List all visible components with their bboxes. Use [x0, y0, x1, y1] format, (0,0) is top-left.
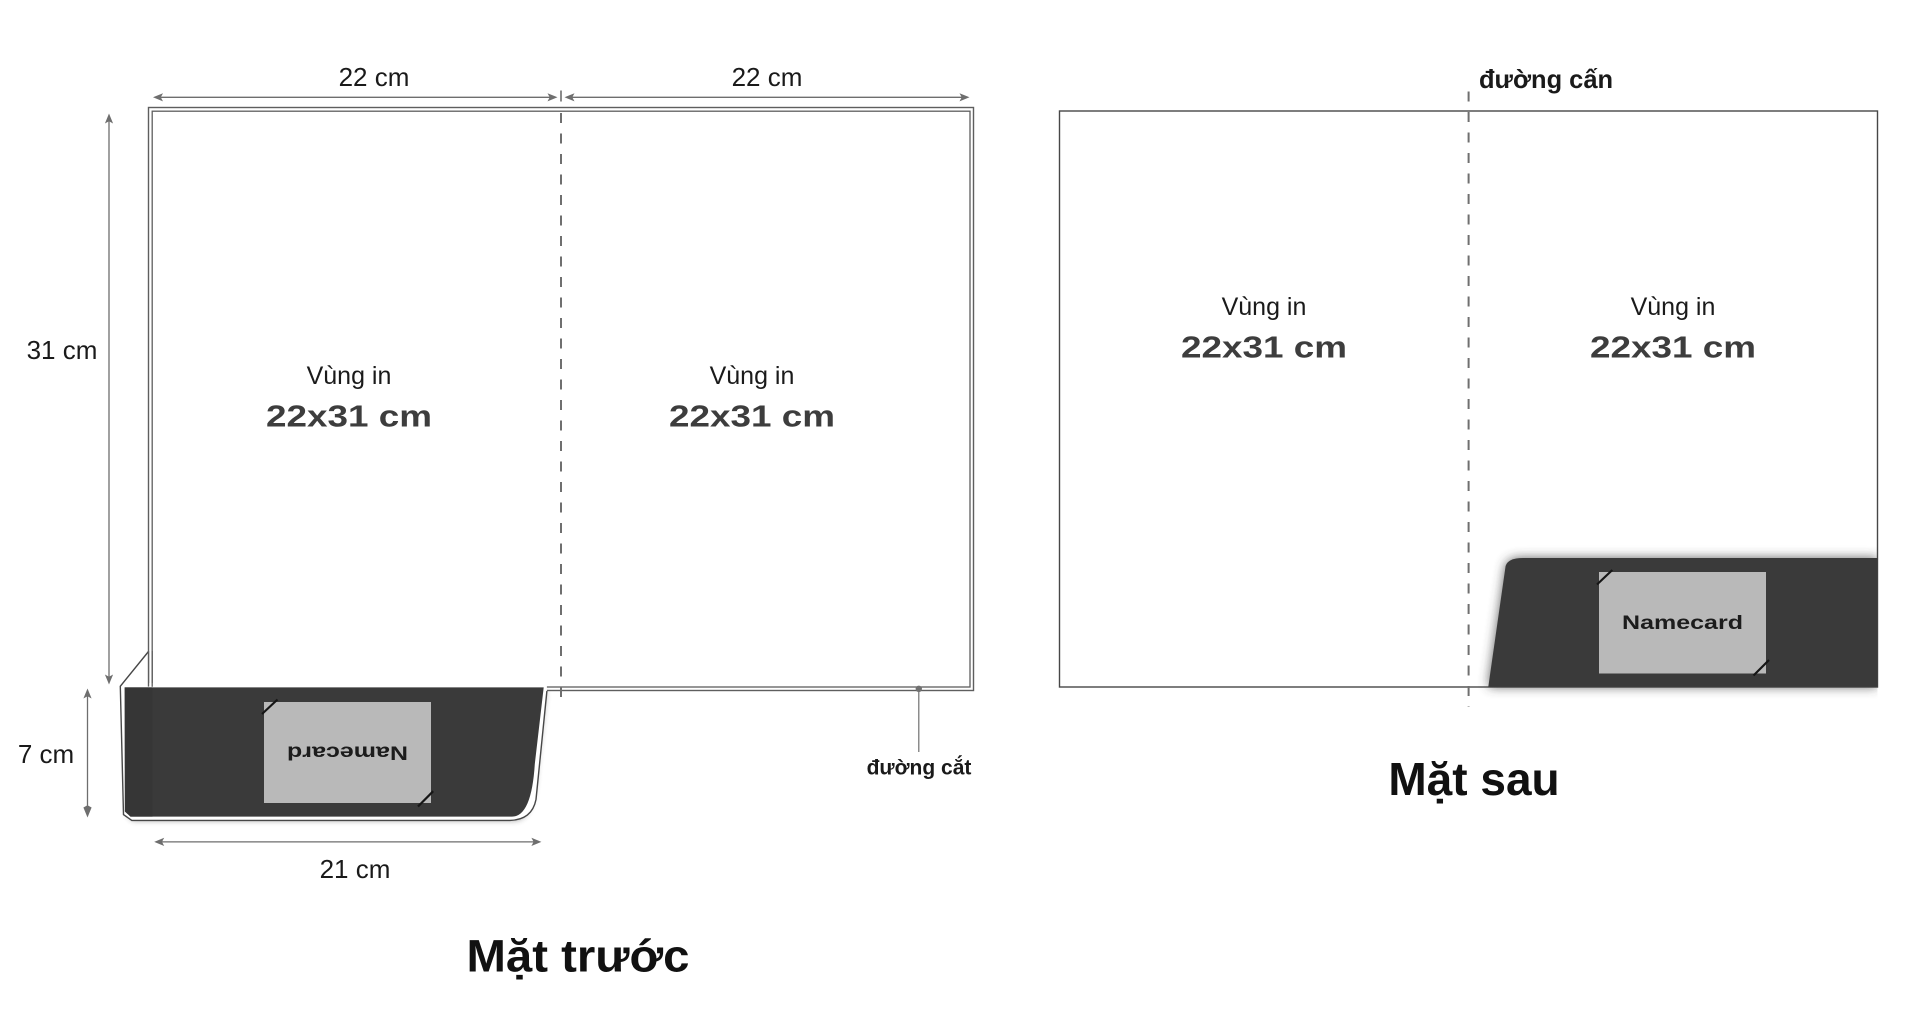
svg-text:21 cm: 21 cm — [320, 854, 391, 884]
svg-text:22x31 cm: 22x31 cm — [1181, 330, 1347, 365]
svg-text:Vùng in: Vùng in — [710, 362, 795, 390]
svg-text:Namecard: Namecard — [287, 742, 408, 763]
svg-text:Namecard: Namecard — [1622, 613, 1743, 634]
svg-text:31 cm: 31 cm — [27, 335, 98, 365]
svg-text:đường cấn: đường cấn — [1479, 64, 1613, 94]
svg-text:Vùng in: Vùng in — [1222, 293, 1307, 321]
svg-text:22 cm: 22 cm — [732, 62, 803, 92]
svg-text:Vùng in: Vùng in — [1631, 293, 1716, 321]
svg-text:Mặt trước: Mặt trước — [467, 931, 690, 982]
svg-text:22x31 cm: 22x31 cm — [669, 399, 835, 434]
svg-text:22 cm: 22 cm — [339, 62, 410, 92]
svg-text:22x31 cm: 22x31 cm — [1590, 330, 1756, 365]
svg-text:7 cm: 7 cm — [18, 739, 74, 769]
svg-text:22x31 cm: 22x31 cm — [266, 399, 432, 434]
svg-text:đường cắt: đường cắt — [867, 756, 972, 780]
svg-text:Mặt sau: Mặt sau — [1388, 753, 1559, 805]
svg-text:Vùng in: Vùng in — [307, 362, 392, 390]
